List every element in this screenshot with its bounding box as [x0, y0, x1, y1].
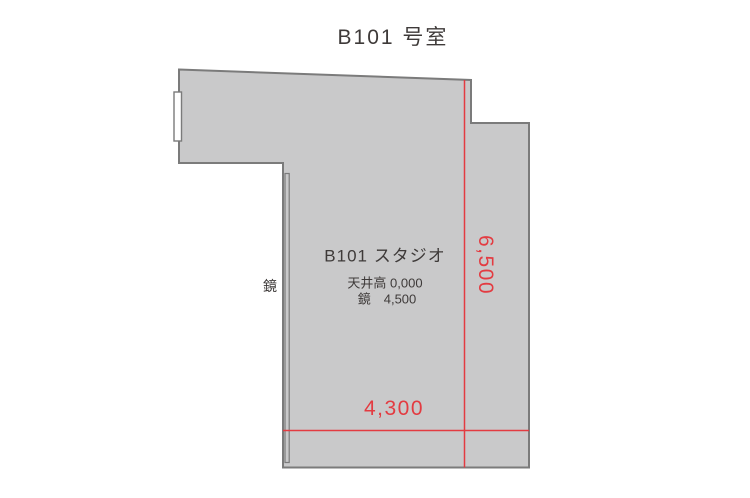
mirror-side-label: 鏡 [263, 276, 277, 296]
dimension-height-label: 6,500 [473, 235, 497, 295]
dimension-width-label: 4,300 [364, 397, 424, 421]
mirror-spec-label: 鏡 4,500 [358, 289, 417, 308]
room-name-label: B101 スタジオ [324, 242, 445, 267]
door-opening [174, 92, 182, 141]
page-title: B101 号室 [338, 21, 449, 51]
floor-plan-page: B101 号室 B101 スタジオ 天井高 0,000 鏡 4,500 鏡 6,… [0, 0, 750, 498]
